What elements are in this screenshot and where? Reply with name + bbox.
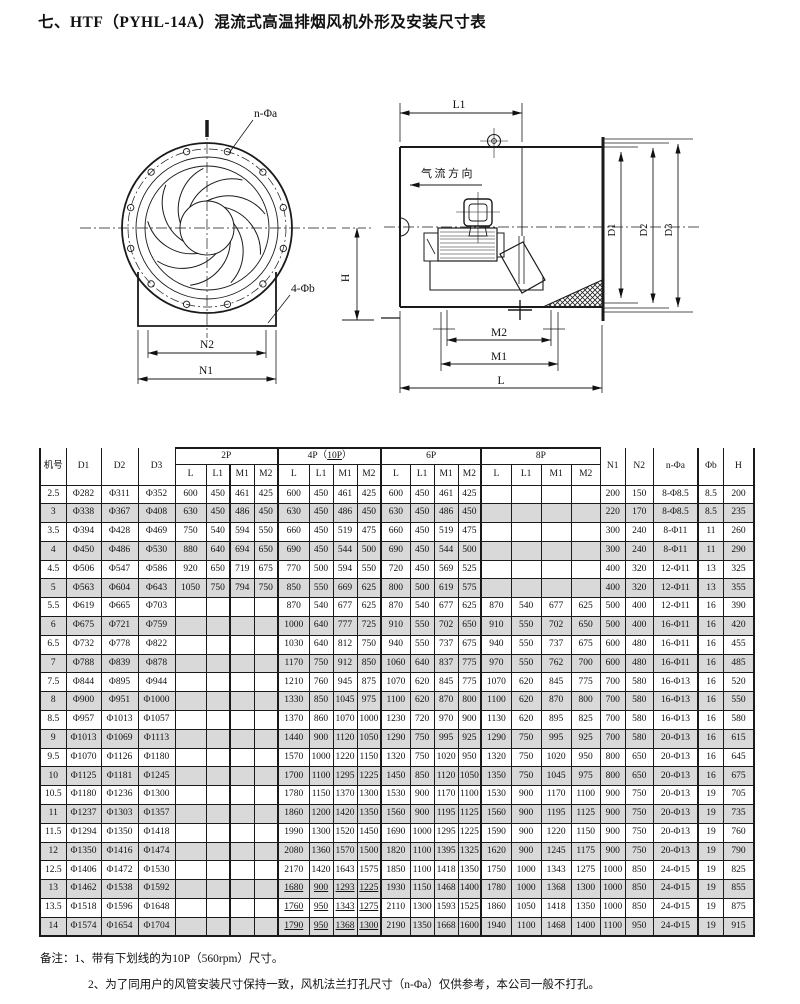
table-cell: 640	[410, 654, 434, 673]
table-cell: 540	[309, 598, 333, 617]
table-cell	[206, 635, 230, 654]
sub-header: M1	[230, 464, 254, 485]
table-cell	[511, 504, 541, 523]
col-header: N2	[625, 448, 653, 485]
table-cell: 1170	[541, 786, 571, 805]
table-cell: 11	[698, 541, 723, 560]
table-cell: 870	[434, 692, 458, 711]
table-cell: 995	[434, 729, 458, 748]
table-cell	[206, 729, 230, 748]
table-cell: Φ1070	[66, 748, 101, 767]
table-cell: Φ675	[66, 617, 101, 636]
guide-vane	[500, 242, 545, 293]
table-cell: 677	[333, 598, 357, 617]
table-cell: Φ1406	[66, 861, 101, 880]
table-cell	[206, 711, 230, 730]
dimension-table-wrap: 机号D1D2D32P4P（10P）6P8PN1N2n-ΦaΦbHLL1M1M2L…	[39, 447, 753, 937]
table-cell: 702	[434, 617, 458, 636]
table-cell: 24-Φ15	[653, 880, 698, 899]
table-cell: 1570	[278, 748, 309, 767]
table-cell: 1450	[381, 767, 410, 786]
table-cell: 594	[333, 560, 357, 579]
table-cell: 580	[625, 673, 653, 692]
table-cell: 620	[511, 673, 541, 692]
table-cell: 20-Φ13	[653, 729, 698, 748]
four-phi-b-label: 4-Φb	[291, 283, 315, 295]
table-cell	[254, 767, 278, 786]
table-cell	[541, 560, 571, 579]
table-cell	[254, 673, 278, 692]
table-cell: 950	[458, 748, 481, 767]
table-cell: 1195	[541, 805, 571, 824]
table-cell	[571, 541, 600, 560]
table-cell	[206, 617, 230, 636]
d3-label: D3	[664, 224, 675, 237]
table-cell: Φ1648	[138, 899, 175, 918]
table-cell: 1850	[381, 861, 410, 880]
table-cell: 550	[723, 692, 754, 711]
table-cell: 1150	[357, 748, 381, 767]
table-row: 12Φ1350Φ1416Φ147420801360157015001820110…	[40, 842, 754, 861]
table-cell: 24-Φ15	[653, 899, 698, 918]
table-cell	[254, 635, 278, 654]
table-row: 4Φ450Φ486Φ530880640694650690450544500690…	[40, 541, 754, 560]
table-cell: 16	[698, 617, 723, 636]
table-cell: 1120	[333, 729, 357, 748]
table-cell: Φ1592	[138, 880, 175, 899]
table-cell: 1350	[458, 861, 481, 880]
table-cell: 600	[600, 635, 625, 654]
table-cell: Φ1518	[66, 899, 101, 918]
col-header: D1	[66, 448, 101, 485]
table-cell: Φ895	[101, 673, 138, 692]
table-cell: 1225	[357, 880, 381, 899]
table-cell: 1050	[458, 767, 481, 786]
table-cell: 19	[698, 823, 723, 842]
table-cell: 775	[571, 673, 600, 692]
table-cell: 1050	[175, 579, 206, 598]
table-cell: 1680	[278, 880, 309, 899]
table-cell: 540	[410, 598, 434, 617]
table-cell: 1245	[541, 842, 571, 861]
table-cell: 615	[723, 729, 754, 748]
table-cell: 900	[458, 711, 481, 730]
table-cell: 837	[434, 654, 458, 673]
table-cell	[206, 673, 230, 692]
table-cell: Φ311	[101, 485, 138, 504]
table-cell: 20-Φ13	[653, 805, 698, 824]
table-cell: 750	[206, 579, 230, 598]
table-cell: 650	[458, 617, 481, 636]
table-cell: 9	[40, 729, 66, 748]
table-cell: 6.5	[40, 635, 66, 654]
table-cell: 1370	[278, 711, 309, 730]
table-cell: 850	[410, 767, 434, 786]
table-cell: 625	[357, 598, 381, 617]
table-cell: 580	[625, 711, 653, 730]
table-cell: 1050	[511, 899, 541, 918]
table-cell: 450	[410, 523, 434, 542]
table-cell: 1620	[481, 842, 511, 861]
table-cell	[481, 579, 511, 598]
sub-header: M1	[333, 464, 357, 485]
table-cell: 486	[434, 504, 458, 523]
table-cell: 500	[600, 617, 625, 636]
table-row: 8Φ900Φ951Φ100013308501045975110062087080…	[40, 692, 754, 711]
table-cell: 580	[625, 692, 653, 711]
table-cell	[230, 767, 254, 786]
table-cell: 500	[458, 541, 481, 560]
table-cell: 1225	[357, 767, 381, 786]
table-row: 11.5Φ1294Φ1350Φ1418199013001520145016901…	[40, 823, 754, 842]
table-cell: 850	[625, 880, 653, 899]
table-cell: 1000	[278, 617, 309, 636]
table-cell: 669	[333, 579, 357, 598]
table-cell: 1395	[434, 842, 458, 861]
table-cell: 8	[40, 692, 66, 711]
table-cell: 900	[600, 823, 625, 842]
table-cell: 5	[40, 579, 66, 598]
table-cell: 150	[625, 485, 653, 504]
table-cell: Φ778	[101, 635, 138, 654]
table-cell: 475	[458, 523, 481, 542]
table-cell: 8-Φ11	[653, 541, 698, 560]
table-cell	[230, 711, 254, 730]
table-cell: 630	[175, 504, 206, 523]
table-cell	[571, 560, 600, 579]
m1-label: M1	[491, 351, 507, 363]
table-cell: 1440	[278, 729, 309, 748]
table-cell: 1575	[357, 861, 381, 880]
table-cell: 1520	[333, 823, 357, 842]
table-cell: 235	[723, 504, 754, 523]
table-cell: 455	[723, 635, 754, 654]
table-cell	[206, 823, 230, 842]
l1-label: L1	[453, 99, 466, 111]
table-cell: 550	[410, 617, 434, 636]
table-cell	[230, 598, 254, 617]
group-header: 6P	[381, 448, 481, 464]
table-cell	[481, 523, 511, 542]
table-row: 6.5Φ732Φ778Φ8221030640812750940550737675…	[40, 635, 754, 654]
table-cell: 1400	[571, 917, 600, 936]
table-cell: 24-Φ15	[653, 861, 698, 880]
table-cell: 390	[723, 598, 754, 617]
table-cell: 540	[206, 523, 230, 542]
table-cell: 24-Φ15	[653, 917, 698, 936]
table-cell: 544	[333, 541, 357, 560]
table-cell: 8.5	[698, 485, 723, 504]
table-cell: Φ822	[138, 635, 175, 654]
sub-header: L1	[206, 464, 230, 485]
table-cell: 600	[381, 485, 410, 504]
table-row: 13Φ1462Φ1538Φ159216809001293122519301150…	[40, 880, 754, 899]
table-cell: 1120	[434, 767, 458, 786]
table-cell: 1780	[278, 786, 309, 805]
table-cell: 1930	[381, 880, 410, 899]
table-cell	[254, 917, 278, 936]
table-cell: 16	[698, 711, 723, 730]
table-cell: 1300	[571, 880, 600, 899]
table-cell: 16	[698, 692, 723, 711]
table-cell: 1940	[481, 917, 511, 936]
table-cell: 461	[230, 485, 254, 504]
table-cell: 1070	[333, 711, 357, 730]
table-cell: 1125	[571, 805, 600, 824]
table-row: 2.5Φ282Φ311Φ3526004504614256004504614256…	[40, 485, 754, 504]
table-cell: 16-Φ11	[653, 635, 698, 654]
table-row: 7Φ788Φ839Φ878117075091285010606408377759…	[40, 654, 754, 673]
table-cell: 4.5	[40, 560, 66, 579]
table-cell: 1295	[434, 823, 458, 842]
table-cell: 675	[254, 560, 278, 579]
table-cell: 520	[723, 673, 754, 692]
table-cell: 320	[625, 579, 653, 598]
table-cell	[541, 541, 571, 560]
col-header: D3	[138, 448, 175, 485]
table-cell: 550	[254, 523, 278, 542]
table-cell: 850	[625, 899, 653, 918]
table-cell: 630	[278, 504, 309, 523]
table-cell: Φ1357	[138, 805, 175, 824]
table-cell: Φ900	[66, 692, 101, 711]
table-cell: 290	[723, 541, 754, 560]
table-cell: Φ1462	[66, 880, 101, 899]
table-cell: 900	[600, 786, 625, 805]
table-cell: 425	[254, 485, 278, 504]
table-cell: 2.5	[40, 485, 66, 504]
col-header: Φb	[698, 448, 723, 485]
table-cell: Φ844	[66, 673, 101, 692]
table-cell: 1350	[410, 917, 434, 936]
table-cell	[175, 598, 206, 617]
table-cell: 19	[698, 805, 723, 824]
table-cell: 550	[511, 635, 541, 654]
table-cell: Φ1472	[101, 861, 138, 880]
table-cell: 690	[381, 541, 410, 560]
table-cell: 900	[511, 805, 541, 824]
table-cell: 8-Φ8.5	[653, 504, 698, 523]
sub-header: L	[278, 464, 309, 485]
table-cell	[206, 861, 230, 880]
table-cell: 1195	[434, 805, 458, 824]
table-row: 9.5Φ1070Φ1126Φ11801570100012201150132075…	[40, 748, 754, 767]
table-cell: 702	[541, 617, 571, 636]
table-row: 6Φ675Φ721Φ759100064077772591055070265091…	[40, 617, 754, 636]
sub-header: M2	[458, 464, 481, 485]
table-cell: 1330	[278, 692, 309, 711]
table-cell: 420	[723, 617, 754, 636]
table-cell	[230, 899, 254, 918]
table-cell: 16	[698, 673, 723, 692]
table-cell: 1290	[481, 729, 511, 748]
table-cell: 1045	[333, 692, 357, 711]
table-cell: Φ486	[101, 541, 138, 560]
table-cell: 14	[40, 917, 66, 936]
table-cell	[206, 786, 230, 805]
table-cell: Φ732	[66, 635, 101, 654]
table-cell: 640	[309, 635, 333, 654]
table-cell: 1100	[600, 917, 625, 936]
table-cell: 544	[434, 541, 458, 560]
table-cell	[175, 673, 206, 692]
table-cell	[230, 654, 254, 673]
table-cell: 700	[600, 692, 625, 711]
table-cell: 19	[698, 786, 723, 805]
table-cell: Φ1180	[138, 748, 175, 767]
table-cell: 1368	[333, 917, 357, 936]
table-cell: 12-Φ11	[653, 560, 698, 579]
table-cell: 870	[278, 598, 309, 617]
motor-base	[430, 261, 543, 290]
table-cell: 600	[600, 654, 625, 673]
table-cell: 20-Φ13	[653, 767, 698, 786]
table-cell: 850	[278, 579, 309, 598]
table-cell: 1100	[410, 861, 434, 880]
table-cell	[571, 504, 600, 523]
table-cell	[175, 635, 206, 654]
col-header: 机号	[40, 448, 66, 485]
col-header: H	[723, 448, 754, 485]
sub-header: L1	[309, 464, 333, 485]
table-cell: 580	[723, 711, 754, 730]
table-cell: 1420	[309, 861, 333, 880]
fan-front-view-drawing	[80, 120, 374, 384]
table-cell: 900	[309, 880, 333, 899]
table-cell: 1000	[410, 823, 434, 842]
airflow-label: 气流方向	[421, 166, 475, 180]
table-cell	[254, 842, 278, 861]
table-cell: 900	[600, 805, 625, 824]
table-cell	[175, 748, 206, 767]
table-cell: 660	[381, 523, 410, 542]
table-cell: 700	[571, 654, 600, 673]
table-row: 9Φ1013Φ1069Φ1113144090011201050129075099…	[40, 729, 754, 748]
n-phi-a-leader	[229, 120, 253, 153]
table-cell: 900	[511, 842, 541, 861]
table-cell: 486	[333, 504, 357, 523]
table-cell: 620	[410, 692, 434, 711]
table-cell: Φ1126	[101, 748, 138, 767]
table-cell: Φ759	[138, 617, 175, 636]
table-cell: 1070	[481, 673, 511, 692]
table-cell: 850	[309, 692, 333, 711]
table-cell: 10.5	[40, 786, 66, 805]
table-cell: Φ530	[138, 541, 175, 560]
table-cell: Φ1416	[101, 842, 138, 861]
table-cell: 970	[481, 654, 511, 673]
table-cell: 1070	[381, 673, 410, 692]
table-cell: 800	[600, 748, 625, 767]
table-cell: 1400	[458, 880, 481, 899]
table-cell: 900	[600, 842, 625, 861]
table-cell: Φ408	[138, 504, 175, 523]
table-cell	[571, 579, 600, 598]
table-row: 3Φ338Φ367Φ408630450486450630450486450630…	[40, 504, 754, 523]
table-cell: 3	[40, 504, 66, 523]
table-cell: 845	[434, 673, 458, 692]
table-cell: 525	[458, 560, 481, 579]
table-cell: 950	[625, 917, 653, 936]
table-cell: 1000	[357, 711, 381, 730]
table-cell: Φ788	[66, 654, 101, 673]
front-view-labels: n-Φa 4-Φb N2 N1 H	[199, 108, 352, 377]
table-cell: Φ703	[138, 598, 175, 617]
table-cell: 640	[206, 541, 230, 560]
technical-drawings: n-Φa 4-Φb N2 N1 H	[0, 82, 800, 432]
table-cell: 825	[571, 711, 600, 730]
table-cell: 486	[230, 504, 254, 523]
table-cell: 1225	[458, 823, 481, 842]
motor-body	[438, 228, 497, 261]
table-cell: Φ1236	[101, 786, 138, 805]
col-header: D2	[101, 448, 138, 485]
table-cell: Φ338	[66, 504, 101, 523]
table-cell	[254, 711, 278, 730]
table-cell: 800	[571, 692, 600, 711]
table-cell: 1530	[381, 786, 410, 805]
table-row: 5Φ563Φ604Φ643105075079475085055066962580…	[40, 579, 754, 598]
table-cell: 1290	[381, 729, 410, 748]
table-cell: 677	[434, 598, 458, 617]
table-cell	[175, 805, 206, 824]
note-item-1: 1、带有下划线的为10P（560rpm）尺寸。	[75, 953, 284, 965]
table-cell: 790	[723, 842, 754, 861]
table-cell	[254, 823, 278, 842]
table-cell: Φ352	[138, 485, 175, 504]
table-cell	[175, 917, 206, 936]
table-cell: 12	[40, 842, 66, 861]
table-cell: 750	[511, 748, 541, 767]
n1-label: N1	[199, 365, 213, 377]
table-cell: 1860	[481, 899, 511, 918]
table-cell: 1350	[481, 767, 511, 786]
table-cell: 220	[600, 504, 625, 523]
notes-label: 备注：	[40, 953, 75, 965]
table-cell: Φ721	[101, 617, 138, 636]
table-cell: 461	[333, 485, 357, 504]
sub-header: M2	[357, 464, 381, 485]
table-cell: 485	[723, 654, 754, 673]
table-cell	[230, 635, 254, 654]
table-cell: 1050	[357, 729, 381, 748]
table-cell: 20-Φ13	[653, 842, 698, 861]
table-cell	[571, 523, 600, 542]
table-cell: 450	[309, 504, 333, 523]
table-row: 8.5Φ957Φ1013Φ105713708601070100012307209…	[40, 711, 754, 730]
table-cell	[206, 692, 230, 711]
table-cell: Φ604	[101, 579, 138, 598]
table-cell: 1360	[309, 842, 333, 861]
table-cell: Φ951	[101, 692, 138, 711]
table-cell: 675	[458, 635, 481, 654]
table-cell: 719	[230, 560, 254, 579]
table-cell: 8.5	[40, 711, 66, 730]
table-cell: 910	[381, 617, 410, 636]
table-body: 2.5Φ282Φ311Φ3526004504614256004504614256…	[40, 485, 754, 936]
table-cell	[206, 880, 230, 899]
table-cell: 16-Φ13	[653, 711, 698, 730]
table-cell: 750	[410, 729, 434, 748]
table-cell: 7	[40, 654, 66, 673]
table-cell: 1790	[278, 917, 309, 936]
table-row: 4.5Φ506Φ547Φ5869206507196757705005945507…	[40, 560, 754, 579]
table-cell	[230, 880, 254, 899]
sub-header: L1	[511, 464, 541, 485]
table-cell: 945	[333, 673, 357, 692]
table-cell	[230, 823, 254, 842]
table-cell: 620	[511, 711, 541, 730]
